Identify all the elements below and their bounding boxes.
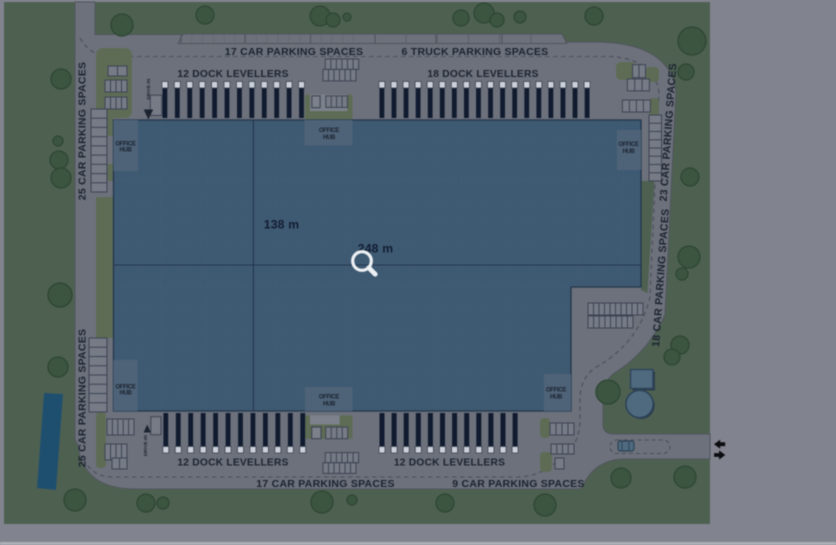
svg-text:HUB: HUB [119,148,132,154]
svg-text:OFFICE: OFFICE [319,395,339,401]
svg-text:OFFICE: OFFICE [618,142,638,148]
svg-text:25 CAR PARKING SPACES: 25 CAR PARKING SPACES [77,62,89,200]
svg-text:138 m: 138 m [264,218,300,232]
svg-text:OFFICE: OFFICE [546,388,566,394]
svg-text:12 DOCK LEVELLERS: 12 DOCK LEVELLERS [177,69,288,80]
svg-text:17 CAR PARKING SPACES: 17 CAR PARKING SPACES [256,478,394,490]
svg-text:25 CAR PARKING SPACES: 25 CAR PARKING SPACES [77,329,89,467]
svg-text:HUB: HUB [323,402,336,408]
svg-text:9 CAR PARKING SPACES: 9 CAR PARKING SPACES [452,478,584,490]
svg-text:DRIVE-IN: DRIVE-IN [143,434,148,456]
svg-text:HUB: HUB [622,149,635,155]
svg-text:18 DOCK LEVELLERS: 18 DOCK LEVELLERS [427,69,538,80]
svg-text:OFFICE: OFFICE [319,128,339,134]
svg-text:HUB: HUB [550,395,563,401]
svg-text:12 DOCK LEVELLERS: 12 DOCK LEVELLERS [177,458,288,469]
svg-text:6 TRUCK PARKING SPACES: 6 TRUCK PARKING SPACES [402,46,549,58]
svg-text:17 CAR PARKING SPACES: 17 CAR PARKING SPACES [225,46,363,58]
svg-text:HUB: HUB [119,391,132,397]
svg-text:DRIVE-IN: DRIVE-IN [146,78,151,100]
svg-text:12 DOCK LEVELLERS: 12 DOCK LEVELLERS [394,458,505,469]
svg-text:HUB: HUB [323,135,336,141]
